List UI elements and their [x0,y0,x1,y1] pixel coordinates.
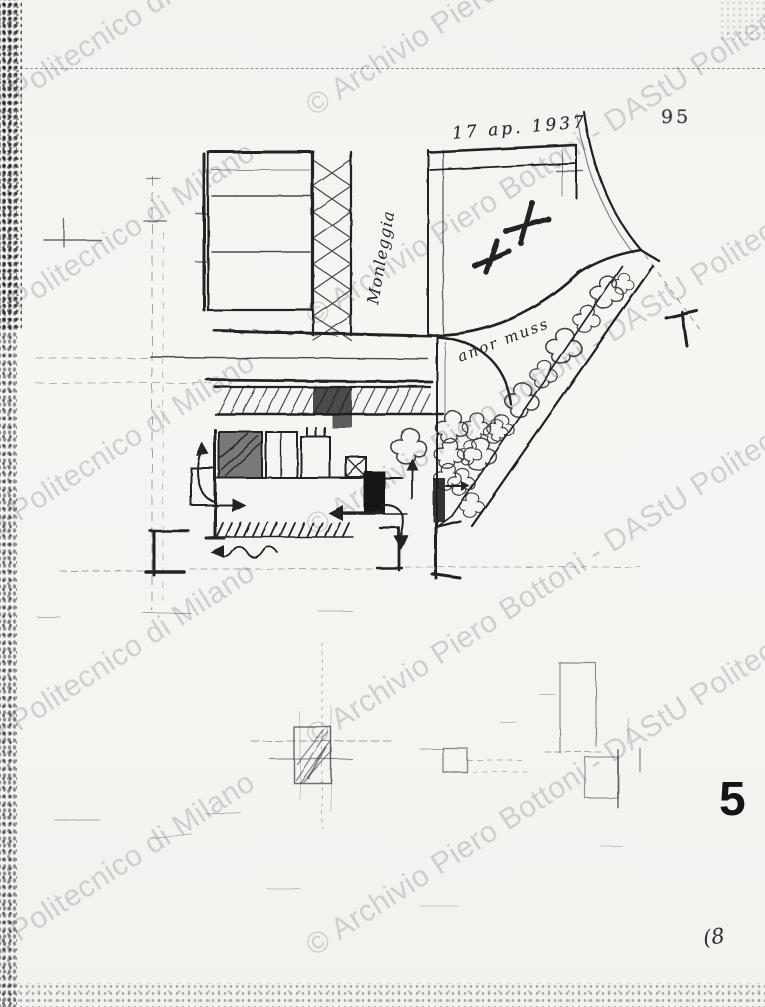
scanned-sketch-page: © Archivio Piero Bottoni - DAStU Politec… [0,0,765,1007]
street-label-monleggia: Monleggia [363,209,398,307]
cross-marks [475,203,548,272]
lower-study-sketch [55,643,640,906]
tick-comb [217,523,349,536]
survey-mark [666,311,697,346]
site-plan-sketch: Monleggia anor muss [0,0,765,1007]
main-plan [36,112,702,617]
cross-hatch-strip [313,160,351,340]
